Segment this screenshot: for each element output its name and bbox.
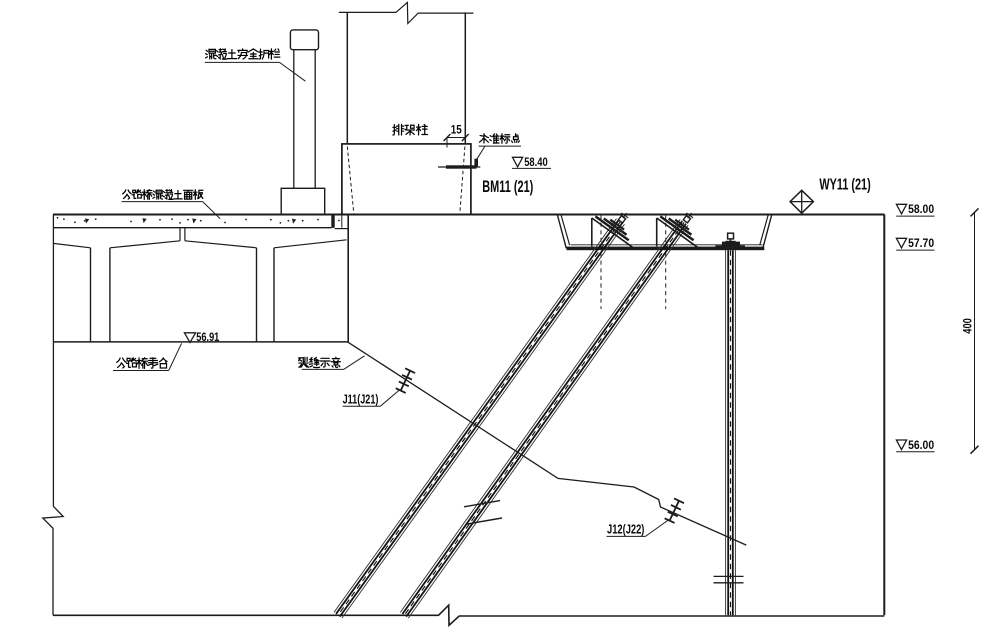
svg-text:400: 400 <box>961 318 975 334</box>
svg-text:J11(J21): J11(J21) <box>343 392 379 407</box>
svg-text:56.00: 56.00 <box>908 438 934 452</box>
svg-text:BM11 (21): BM11 (21) <box>482 178 533 196</box>
svg-text:J12(J22): J12(J22) <box>607 522 644 537</box>
svg-text:57.70: 57.70 <box>908 236 934 250</box>
svg-text:58.00: 58.00 <box>908 202 934 216</box>
svg-text:15: 15 <box>451 122 462 136</box>
svg-text:58.40: 58.40 <box>524 155 548 169</box>
svg-text:56.91: 56.91 <box>196 330 219 344</box>
svg-text:WY11 (21): WY11 (21) <box>819 177 870 194</box>
